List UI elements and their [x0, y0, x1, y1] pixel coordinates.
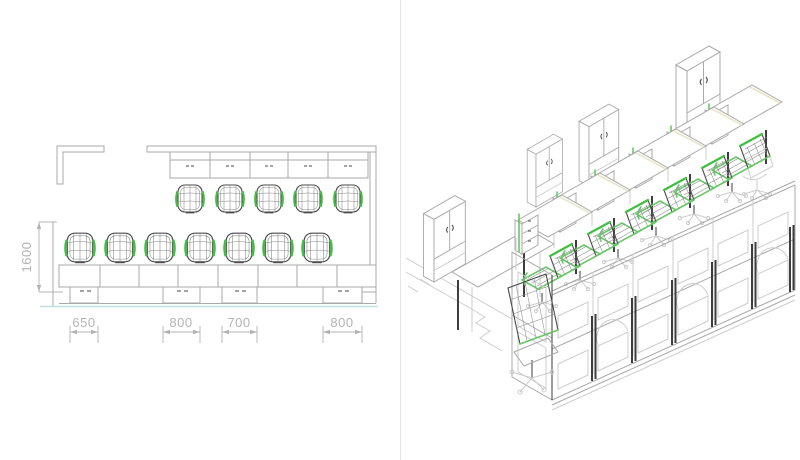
plan-view-panel: 1600 650 800 — [0, 0, 400, 460]
dim-800-b: 800 — [323, 315, 362, 343]
top-chair-row — [176, 185, 362, 213]
iso-view-panel: 1000 — [400, 0, 800, 460]
pedestal — [163, 287, 200, 303]
dim-1600: 1600 — [19, 222, 63, 292]
corner-counter — [57, 146, 104, 184]
bottom-chair-row — [65, 233, 331, 262]
dim-800a-label: 800 — [169, 315, 192, 330]
dim-800-a: 800 — [163, 315, 200, 343]
desk-row — [59, 265, 376, 287]
pedestal — [323, 287, 362, 303]
iso-view: 1000 — [401, 0, 800, 460]
dim-1600-label: 1600 — [19, 242, 34, 273]
pedestal — [70, 287, 98, 303]
dim-700-label: 700 — [227, 315, 250, 330]
walkway-floor-outline: 1000 — [401, 258, 512, 396]
dim-650-label: 650 — [72, 315, 95, 330]
dim-650: 650 — [70, 315, 98, 343]
walkway-desk — [452, 229, 554, 332]
dim-700: 700 — [222, 315, 257, 343]
cad-drawing-canvas: 1600 650 800 — [0, 0, 800, 460]
pedestal — [222, 287, 257, 303]
dim-800b-label: 800 — [330, 315, 353, 330]
pedestal-row — [70, 287, 362, 303]
plan-view: 1600 650 800 — [0, 0, 400, 460]
